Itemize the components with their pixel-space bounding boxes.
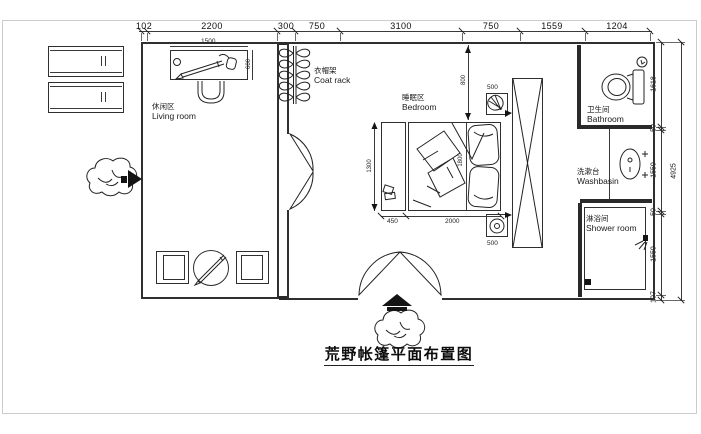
table-lamp-icon: [488, 95, 512, 117]
desk-pen-icon: [174, 59, 225, 80]
toilet-icon: [602, 57, 647, 104]
dim-arrowheads: [372, 46, 472, 211]
entry-arrow-bottom-icon: [382, 294, 412, 311]
table-pen-icon: [195, 255, 226, 285]
coat-rack-icon: [279, 46, 309, 104]
double-door-left: [290, 134, 313, 209]
bedside-lamp-icon: [490, 212, 512, 233]
entry-arrow-left-icon: [121, 170, 142, 188]
bed-pillows: [468, 124, 500, 208]
drawing-title: 荒野帐篷平面布置图: [324, 343, 474, 366]
desk-chair: [198, 81, 224, 103]
plan-doodles: [0, 0, 701, 434]
wardrobe-cross: [513, 79, 542, 247]
washbasin-icon: [620, 149, 648, 179]
desk-mouse-icon: [219, 54, 237, 70]
bench-items-icon: [383, 185, 395, 200]
floor-plan-canvas: 102 2200 300 750 3100 750 1559 1204 1618…: [0, 0, 701, 434]
shower-head-icon: [635, 235, 648, 250]
floor-drain-icon: [585, 279, 591, 285]
double-door-bottom: [359, 252, 441, 295]
bed-quilt: [413, 123, 484, 207]
